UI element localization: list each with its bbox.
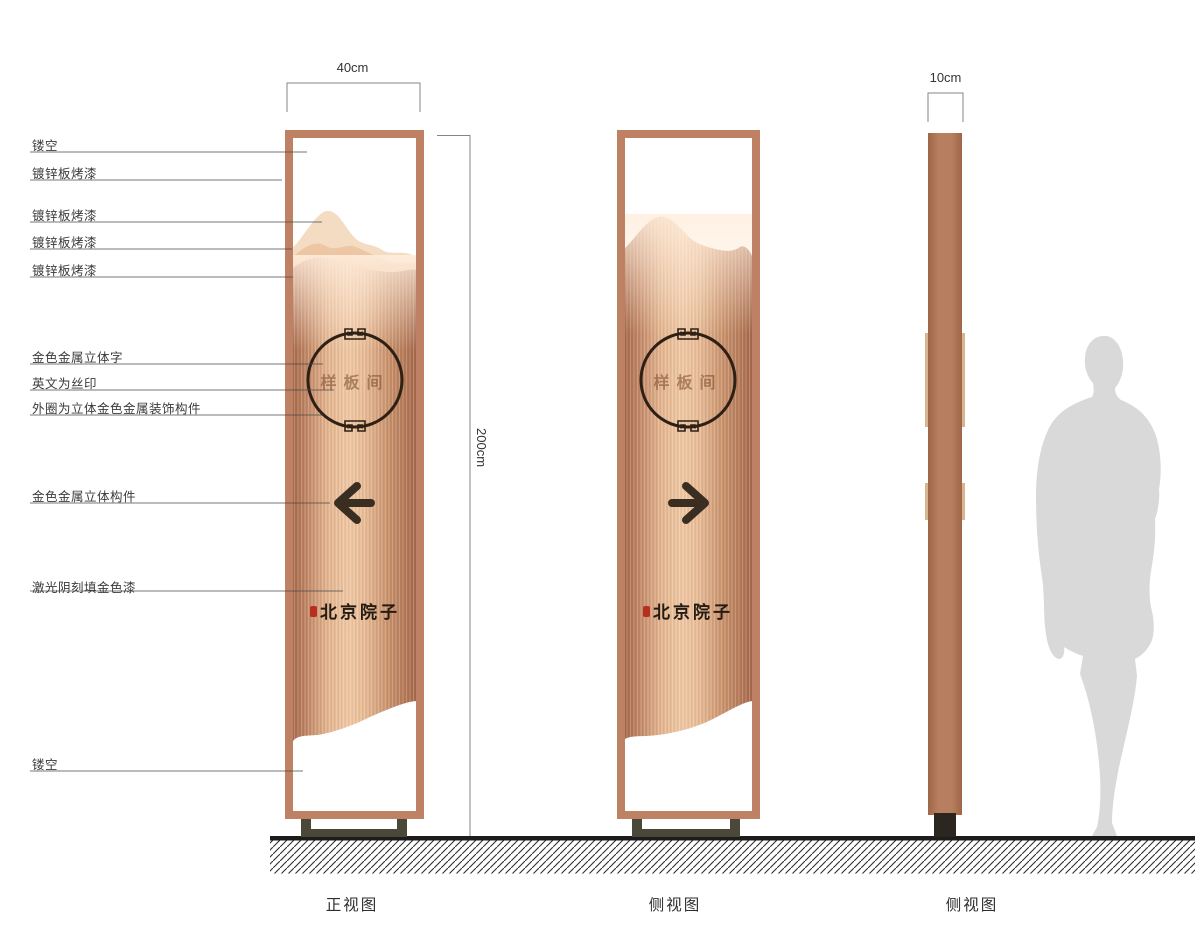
brand-calligraphy-front: 北京院子 xyxy=(290,598,420,623)
panel-front xyxy=(289,134,420,837)
highlight-side xyxy=(625,214,752,334)
profile-column xyxy=(928,133,962,815)
callout-galvanized-1: 镀锌板烤漆 xyxy=(32,163,97,182)
ground-line xyxy=(270,836,1195,874)
seal-stamp-icon xyxy=(643,606,650,617)
panel-profile xyxy=(925,133,965,837)
panel-side-base xyxy=(632,818,740,837)
callout-hollow-bottom: 镂空 xyxy=(32,754,58,773)
drawing-canvas xyxy=(0,0,1195,927)
dimension-200cm-label: 200cm xyxy=(474,428,489,467)
callout-outer-ring-gold: 外圈为立体金色金属装饰构件 xyxy=(32,398,201,417)
callout-hollow-top: 镂空 xyxy=(32,135,58,154)
dimension-10cm-label: 10cm xyxy=(910,70,981,85)
callout-galvanized-3: 镀锌板烤漆 xyxy=(32,232,97,251)
panel-side xyxy=(621,134,756,837)
callout-gold-3d-letters: 金色金属立体字 xyxy=(32,347,123,366)
panel-front-base xyxy=(301,818,407,837)
dimension-40cm-label: 40cm xyxy=(285,60,420,75)
room-name-side: 样板间 xyxy=(628,369,748,393)
dimension-40cm-bracket xyxy=(287,83,420,112)
caption-side-view-2: 侧视图 xyxy=(912,893,1032,915)
brand-calligraphy-side: 北京院子 xyxy=(623,598,753,623)
callout-gold-3d-component: 金色金属立体构件 xyxy=(32,486,136,505)
brand-name-text: 北京院子 xyxy=(320,603,400,623)
callout-laser-engraved: 激光阴刻填金色漆 xyxy=(32,577,136,596)
dimension-200cm-line xyxy=(437,136,470,837)
room-name-front: 样板间 xyxy=(295,369,415,393)
human-silhouette xyxy=(1036,336,1161,836)
highlight-front xyxy=(293,255,416,350)
brand-name-text: 北京院子 xyxy=(653,603,733,623)
signage-design-sheet: 镂空 镀锌板烤漆 镀锌板烤漆 镀锌板烤漆 镀锌板烤漆 金色金属立体字 英文为丝印… xyxy=(0,0,1195,927)
dimension-10cm-bracket xyxy=(928,93,963,122)
caption-side-view-1: 侧视图 xyxy=(615,893,735,915)
callout-galvanized-2: 镀锌板烤漆 xyxy=(32,205,97,224)
caption-front-view: 正视图 xyxy=(292,893,412,915)
profile-base-foot xyxy=(934,813,956,837)
callout-galvanized-4: 镀锌板烤漆 xyxy=(32,260,97,279)
callout-english-silkscreen: 英文为丝印 xyxy=(32,373,97,392)
ground-hatch xyxy=(270,841,1195,874)
seal-stamp-icon xyxy=(310,606,317,617)
